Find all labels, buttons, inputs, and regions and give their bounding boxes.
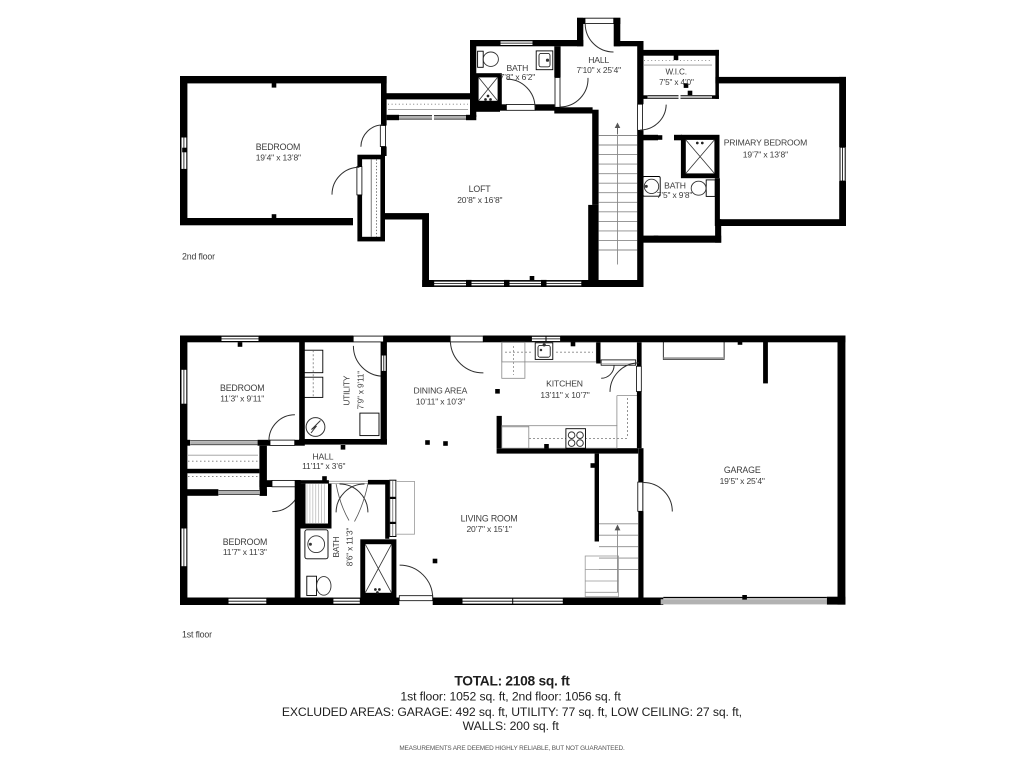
svg-text:7’8" x 6’2": 7’8" x 6’2" xyxy=(500,72,536,82)
svg-text:1st floor: 1st floor xyxy=(182,629,212,639)
svg-text:LOFT: LOFT xyxy=(469,184,492,194)
svg-text:11’7" x 11’3": 11’7" x 11’3" xyxy=(223,547,267,557)
svg-text:7’5" x 9’8": 7’5" x 9’8" xyxy=(657,190,693,200)
svg-text:20’8" x 16’8": 20’8" x 16’8" xyxy=(457,195,502,205)
svg-text:19’5" x 25’4": 19’5" x 25’4" xyxy=(720,476,765,486)
svg-text:KITCHEN: KITCHEN xyxy=(546,379,583,389)
svg-text:GARAGE: GARAGE xyxy=(724,465,761,475)
svg-text:20’7" x 15’1": 20’7" x 15’1" xyxy=(466,524,511,534)
svg-text:13’11" x 10’7": 13’11" x 10’7" xyxy=(540,390,589,400)
svg-text:2nd floor: 2nd floor xyxy=(182,251,215,261)
svg-text:8’6" x 11’3": 8’6" x 11’3" xyxy=(346,528,355,567)
svg-text:UTILITY: UTILITY xyxy=(342,375,352,405)
svg-text:BATH: BATH xyxy=(331,536,341,557)
svg-text:BEDROOM: BEDROOM xyxy=(256,142,300,152)
svg-text:TOTAL: 2108 sq. ft: TOTAL: 2108 sq. ft xyxy=(454,674,570,689)
svg-text:1st floor: 1052 sq. ft, 2nd fl: 1st floor: 1052 sq. ft, 2nd floor: 1056 … xyxy=(400,689,621,703)
svg-text:MEASUREMENTS ARE DEEMED HIGHLY: MEASUREMENTS ARE DEEMED HIGHLY RELIABLE,… xyxy=(399,745,625,752)
svg-text:BEDROOM: BEDROOM xyxy=(223,537,267,547)
svg-text:7’10" x 25’4": 7’10" x 25’4" xyxy=(576,65,621,75)
svg-text:PRIMARY BEDROOM: PRIMARY BEDROOM xyxy=(724,138,807,148)
svg-text:7’9" x 9’11": 7’9" x 9’11" xyxy=(357,371,366,410)
svg-text:19’4" x 13’8": 19’4" x 13’8" xyxy=(256,152,301,162)
svg-text:19’7" x 13’8": 19’7" x 13’8" xyxy=(743,149,788,159)
svg-text:11’3" x 9’11": 11’3" x 9’11" xyxy=(220,393,264,403)
svg-text:WALLS: 200 sq. ft: WALLS: 200 sq. ft xyxy=(463,719,560,733)
svg-text:W.I.C.: W.I.C. xyxy=(666,67,687,76)
svg-text:HALL: HALL xyxy=(588,55,609,65)
svg-text:EXCLUDED AREAS: GARAGE: 492 sq: EXCLUDED AREAS: GARAGE: 492 sq. ft, UTIL… xyxy=(282,705,742,719)
svg-text:LIVING ROOM: LIVING ROOM xyxy=(461,514,518,524)
svg-text:7’5" x 4’0": 7’5" x 4’0" xyxy=(659,78,694,87)
svg-text:DINING AREA: DINING AREA xyxy=(414,386,468,396)
svg-text:10’11" x 10’3": 10’11" x 10’3" xyxy=(416,397,465,407)
svg-text:BATH: BATH xyxy=(664,180,686,190)
svg-text:BEDROOM: BEDROOM xyxy=(220,383,264,393)
svg-text:11’11" x 3’6": 11’11" x 3’6" xyxy=(302,461,345,471)
